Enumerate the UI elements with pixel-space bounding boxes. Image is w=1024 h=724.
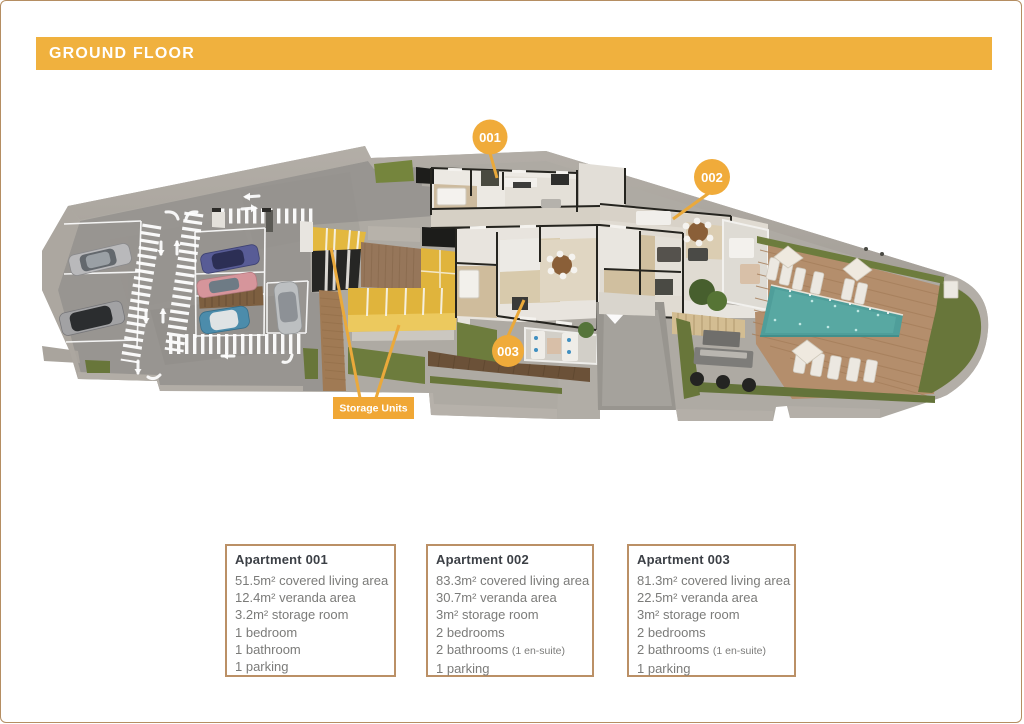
svg-text:Storage Units: Storage Units [339, 403, 407, 415]
svg-text:002: 002 [701, 170, 723, 185]
svg-text:003: 003 [497, 344, 519, 359]
svg-text:001: 001 [479, 130, 501, 145]
